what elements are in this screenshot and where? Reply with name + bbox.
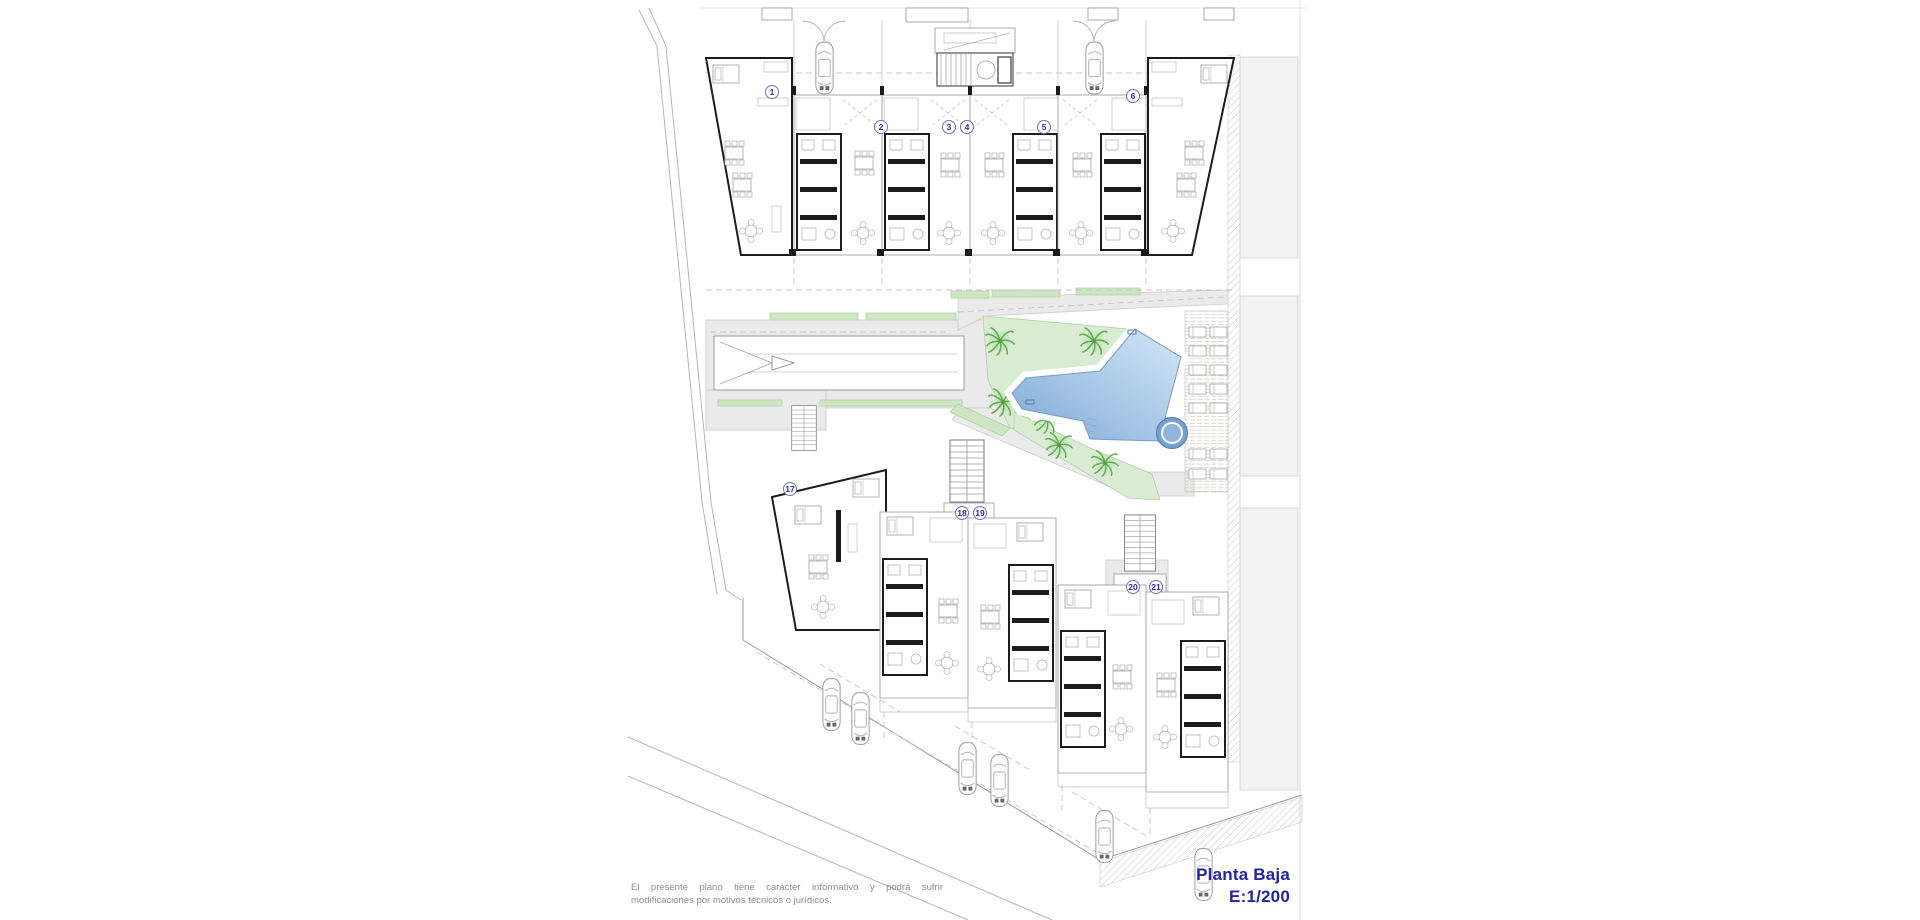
round-spa: [1157, 418, 1188, 449]
car-icon: [816, 42, 833, 94]
unit-20: [1058, 585, 1146, 773]
car-icon: [823, 679, 840, 731]
svg-text:2: 2: [879, 122, 884, 132]
plan-title: Planta Baja: [1040, 864, 1290, 886]
unit-badge: 6: [1127, 90, 1140, 103]
unit-badge: 21: [1150, 581, 1163, 594]
disclaimer: El presente plano tiene carácter informa…: [631, 882, 943, 908]
unit-badge: 17: [784, 483, 797, 496]
unit-6: [1148, 58, 1234, 255]
garage-ramp: [714, 336, 964, 390]
svg-text:20: 20: [1128, 582, 1138, 592]
unit-4: [970, 95, 1058, 255]
car-icon: [991, 755, 1008, 807]
entry-porches: [762, 8, 1234, 22]
neighbor-parcels: [1240, 57, 1298, 790]
plan-title-block: Planta Baja E:1/200: [1040, 864, 1290, 908]
gate-arc-icon: [803, 21, 845, 42]
site-plan-drawing: 1 2 3 4 5 6 17 18 19 20 21: [0, 0, 1920, 920]
unit-19: [968, 518, 1056, 708]
svg-text:1: 1: [770, 87, 775, 97]
unit-2: [794, 95, 882, 255]
svg-text:21: 21: [1151, 582, 1161, 592]
stair-core: [935, 28, 1015, 86]
unit-3: [882, 95, 970, 255]
stair-icon: [792, 406, 817, 451]
unit-badge: 20: [1127, 581, 1140, 594]
unit-badge: 2: [875, 121, 888, 134]
disclaimer-line-1: El presente plano tiene carácter informa…: [631, 882, 943, 895]
unit-1: [706, 58, 792, 255]
svg-text:3: 3: [947, 122, 952, 132]
gate-arc-icon: [1073, 21, 1115, 42]
plan-sheet: 1 2 3 4 5 6 17 18 19 20 21 Planta Baja E…: [0, 0, 1920, 920]
unit-18: [880, 512, 968, 698]
disclaimer-line-2: modificaciones por motivos técnicos o ju…: [631, 895, 943, 908]
car-icon: [852, 693, 869, 745]
svg-text:19: 19: [975, 508, 985, 518]
svg-text:18: 18: [957, 508, 967, 518]
stair-icon: [950, 440, 984, 502]
stair-icon: [1125, 515, 1156, 571]
unit-badge: 18: [956, 507, 969, 520]
unit-badge: 3: [943, 121, 956, 134]
elevator-icon: [998, 57, 1011, 83]
unit-badge: 1: [766, 86, 779, 99]
top-building-row: [706, 8, 1234, 290]
svg-text:5: 5: [1042, 122, 1047, 132]
unit-badge: 19: [974, 507, 987, 520]
sun-deck: [1185, 311, 1228, 492]
unit-badge: 5: [1038, 121, 1051, 134]
car-icon: [1096, 811, 1113, 863]
svg-text:6: 6: [1131, 91, 1136, 101]
svg-text:17: 17: [785, 484, 795, 494]
sidewalk-hatch-strip: [1228, 55, 1240, 762]
bottom-building-cluster: [772, 406, 1228, 808]
unit-5: [1058, 95, 1146, 255]
car-icon: [1086, 42, 1103, 94]
plan-scale: E:1/200: [1040, 886, 1290, 908]
svg-text:4: 4: [965, 122, 970, 132]
unit-badge: 4: [961, 121, 974, 134]
car-icon: [959, 743, 976, 795]
unit-21: [1146, 592, 1228, 792]
